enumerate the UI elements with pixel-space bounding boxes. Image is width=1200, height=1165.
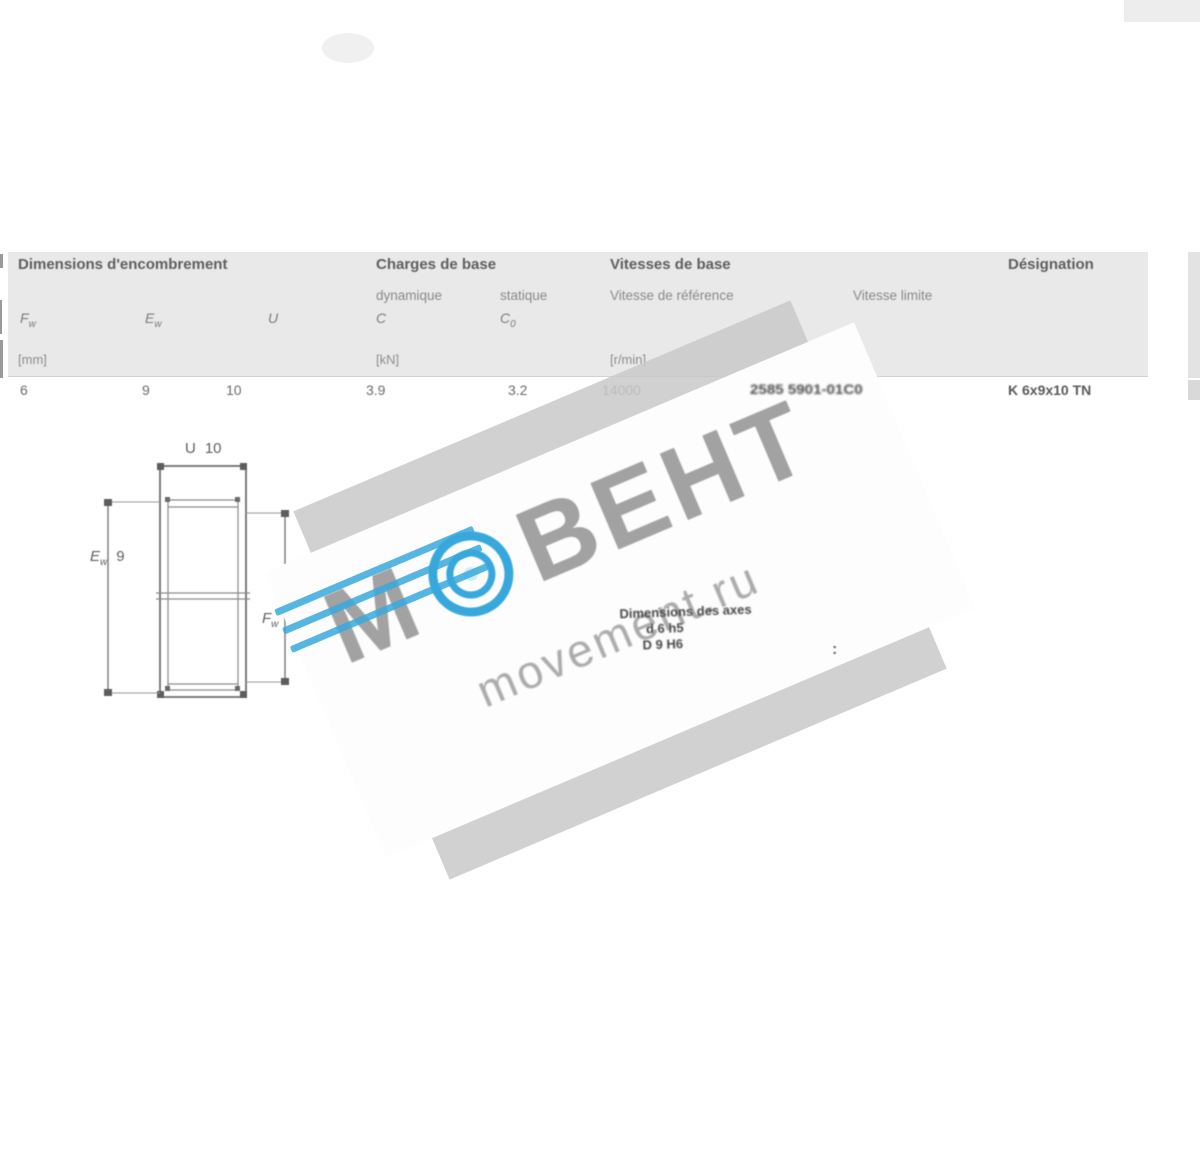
symbol-c0: C0 [500,310,516,330]
edge-tick [0,300,2,334]
cell-u: 10 [226,382,242,398]
cell-c: 3.9 [366,382,385,398]
cell-limit-speed-obscured: 2585 5901-01C0 [750,381,863,397]
column-group-dimensions: Dimensions d'encombrement [18,256,227,273]
colon-mark: : [832,641,837,659]
column-group-designation: Désignation [1008,256,1094,273]
cell-ew: 9 [142,382,150,398]
symbol-u: U [268,310,278,326]
symbol-ew: Ew [145,310,162,330]
unit-mm: [mm] [18,352,47,367]
column-group-vitesses: Vitesses de base [610,256,731,273]
unit-kn: [kN] [376,352,399,367]
scan-artifact [1124,0,1200,22]
edge-smudge [1188,380,1200,400]
edge-tick [0,254,3,268]
subheader-statique: statique [500,288,547,303]
catalog-page: Dimensions d'encombrement Charges de bas… [0,0,1200,1165]
subheader-vitesse-reference: Vitesse de référence [610,288,734,303]
cell-designation: K 6x9x10 TN [1008,382,1091,398]
shaft-dimensions-note: Dimensions des axes d 6 h5 D 9 H6 [619,602,753,655]
table-header-band-right [1188,252,1200,378]
scan-artifact [322,33,374,63]
symbol-fw: Fw [20,310,36,330]
cell-c0: 3.2 [508,382,527,398]
cell-fw: 6 [20,382,28,398]
dim-label-width: U10 [185,440,222,457]
edge-tick [0,340,3,378]
dim-label-outer: Ew9 [90,548,125,568]
subheader-vitesse-limite: Vitesse limite [853,288,932,303]
subheader-dynamique: dynamique [376,288,442,303]
symbol-c: C [376,310,386,326]
column-group-charges: Charges de base [376,256,496,273]
